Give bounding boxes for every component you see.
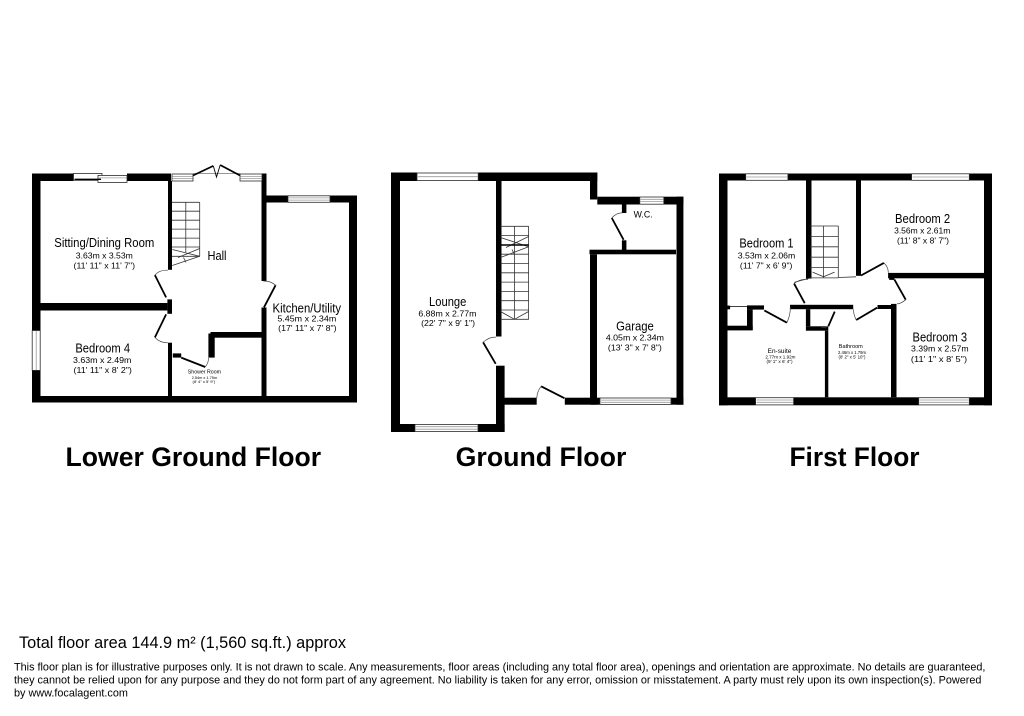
svg-text:Garage: Garage (616, 319, 654, 333)
svg-text:(11' 11" x 8' 2"): (11' 11" x 8' 2") (74, 365, 133, 375)
svg-text:(11' 8" x 8' 7"): (11' 8" x 8' 7") (897, 236, 949, 246)
svg-text:(11' 11" x 11' 7"): (11' 11" x 11' 7") (74, 260, 136, 270)
svg-text:(22' 7" x 9' 1"): (22' 7" x 9' 1") (421, 318, 475, 328)
svg-text:Hall: Hall (208, 249, 227, 263)
svg-text:Bedroom 1: Bedroom 1 (739, 236, 793, 250)
svg-text:(11' 1" x 8' 5"): (11' 1" x 8' 5") (911, 354, 967, 364)
svg-text:3.39m x 2.57m: 3.39m x 2.57m (911, 344, 969, 354)
svg-text:they cannot be relied upon for: they cannot be relied upon for any purpo… (14, 675, 981, 687)
svg-text:Bedroom 3: Bedroom 3 (913, 331, 968, 345)
svg-text:(9' 1" x 6' 4"): (9' 1" x 6' 4") (767, 359, 794, 364)
svg-text:3.63m x 3.53m: 3.63m x 3.53m (76, 251, 133, 261)
svg-text:Sitting/Dining Room: Sitting/Dining Room (54, 236, 154, 250)
svg-text:(8' 4" x 5' 9"): (8' 4" x 5' 9") (193, 379, 216, 384)
svg-text:(8' 2" x 5' 10"): (8' 2" x 5' 10") (839, 355, 867, 360)
svg-text:by www.focalagent.com: by www.focalagent.com (14, 688, 128, 700)
svg-text:Bedroom 4: Bedroom 4 (75, 342, 130, 356)
svg-text:(11' 7" x 6' 9"): (11' 7" x 6' 9") (740, 260, 793, 270)
svg-text:Total floor area 144.9 m² (1,5: Total floor area 144.9 m² (1,560 sq.ft.)… (19, 634, 346, 652)
svg-text:Ground Floor: Ground Floor (456, 442, 627, 472)
svg-text:4.05m x 2.34m: 4.05m x 2.34m (606, 333, 664, 343)
svg-text:(17' 11" x 7' 8"): (17' 11" x 7' 8") (278, 323, 337, 333)
svg-text:3.63m x 2.49m: 3.63m x 2.49m (73, 355, 131, 365)
svg-text:This floor plan is for illustr: This floor plan is for illustrative purp… (14, 662, 985, 674)
svg-text:Bedroom 2: Bedroom 2 (895, 212, 950, 226)
svg-text:(13' 3" x 7' 8"): (13' 3" x 7' 8") (608, 343, 662, 353)
svg-text:3.53m x 2.06m: 3.53m x 2.06m (738, 251, 796, 261)
svg-text:W.C.: W.C. (634, 210, 653, 220)
svg-text:First Floor: First Floor (790, 442, 920, 472)
svg-text:3.56m x 2.61m: 3.56m x 2.61m (894, 225, 950, 235)
svg-text:Lounge: Lounge (429, 295, 466, 309)
svg-text:Lower Ground Floor: Lower Ground Floor (66, 442, 322, 472)
